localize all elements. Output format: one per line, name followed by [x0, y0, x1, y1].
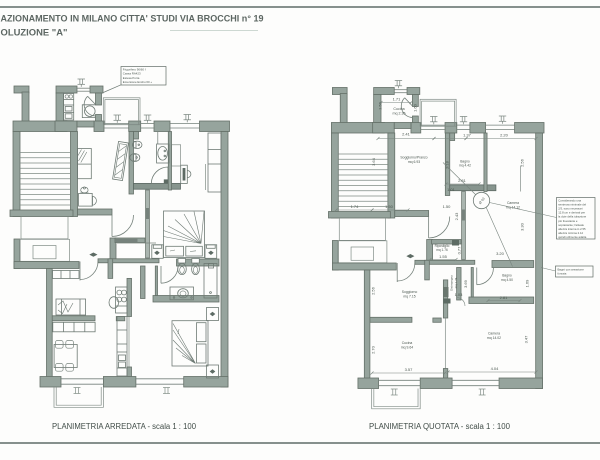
- svg-text:1.03: 1.03: [455, 292, 464, 297]
- svg-text:Cucina: Cucina: [402, 341, 413, 345]
- svg-text:3.57: 3.57: [405, 367, 414, 372]
- svg-text:2.20: 2.20: [500, 133, 509, 138]
- svg-text:Soggiorno/Pranzo: Soggiorno/Pranzo: [400, 156, 427, 160]
- svg-text:2.81: 2.81: [500, 295, 509, 300]
- svg-text:2.41: 2.41: [402, 132, 411, 137]
- svg-text:Soggiorno: Soggiorno: [402, 290, 418, 294]
- svg-text:1.50: 1.50: [378, 101, 383, 110]
- svg-text:3.30: 3.30: [520, 222, 525, 231]
- svg-text:mq 14.02: mq 14.02: [487, 336, 501, 340]
- svg-text:mq 9.64: mq 9.64: [401, 346, 413, 350]
- svg-text:OLUZIONE "A": OLUZIONE "A": [1, 28, 68, 39]
- svg-text:mq 7.15: mq 7.15: [403, 295, 415, 299]
- svg-text:quindi utilmente adatta: quindi utilmente adatta: [558, 235, 587, 239]
- svg-text:mq 4.42: mq 4.42: [459, 164, 471, 168]
- svg-text:1.50: 1.50: [385, 204, 394, 209]
- svg-text:2.70: 2.70: [371, 345, 376, 354]
- svg-text:Cucina: Cucina: [393, 107, 404, 111]
- svg-text:Emersione Enshu 60 +: Emersione Enshu 60 +: [123, 80, 153, 84]
- svg-text:mq 6.93: mq 6.93: [408, 160, 420, 164]
- svg-text:mq 4.50: mq 4.50: [501, 278, 513, 282]
- svg-text:mq 2.35: mq 2.35: [393, 112, 406, 116]
- svg-text:mq 1.76: mq 1.76: [436, 248, 448, 252]
- svg-text:1.69: 1.69: [525, 279, 530, 288]
- svg-text:1.55: 1.55: [439, 254, 448, 259]
- svg-text:1.01: 1.01: [447, 187, 456, 192]
- svg-text:3.64: 3.64: [371, 157, 376, 166]
- svg-text:1.74: 1.74: [351, 204, 360, 209]
- svg-text:PLANIMETRIA ARREDATA - scala 1: PLANIMETRIA ARREDATA - scala 1 : 100: [52, 422, 197, 431]
- svg-text:Disimpegno: Disimpegno: [450, 275, 454, 291]
- svg-text:AZIONAMENTO IN MILANO CITTA' S: AZIONAMENTO IN MILANO CITTA' STUDI VIA B…: [1, 14, 264, 25]
- svg-text:2.43: 2.43: [454, 212, 459, 221]
- svg-text:1.37: 1.37: [463, 133, 472, 138]
- svg-text:forzata: forzata: [558, 272, 567, 276]
- svg-text:Camera: Camera: [488, 332, 500, 336]
- svg-text:3.69: 3.69: [463, 279, 468, 288]
- svg-text:0.77: 0.77: [457, 246, 462, 255]
- svg-text:2.56: 2.56: [371, 286, 376, 295]
- svg-text:3.20: 3.20: [496, 251, 505, 256]
- svg-text:1.71: 1.71: [393, 97, 402, 102]
- svg-text:PLANIMETRIA QUOTATA - scala 1: PLANIMETRIA QUOTATA - scala 1 : 100: [369, 422, 511, 431]
- svg-text:mq 1.74: mq 1.74: [454, 277, 458, 288]
- svg-text:2.56: 2.56: [520, 158, 525, 167]
- svg-text:1.50: 1.50: [443, 204, 452, 209]
- svg-text:4.04: 4.04: [491, 366, 500, 371]
- svg-text:1.60: 1.60: [413, 103, 418, 112]
- svg-text:Camera: Camera: [507, 201, 519, 205]
- svg-text:3.47: 3.47: [524, 335, 529, 344]
